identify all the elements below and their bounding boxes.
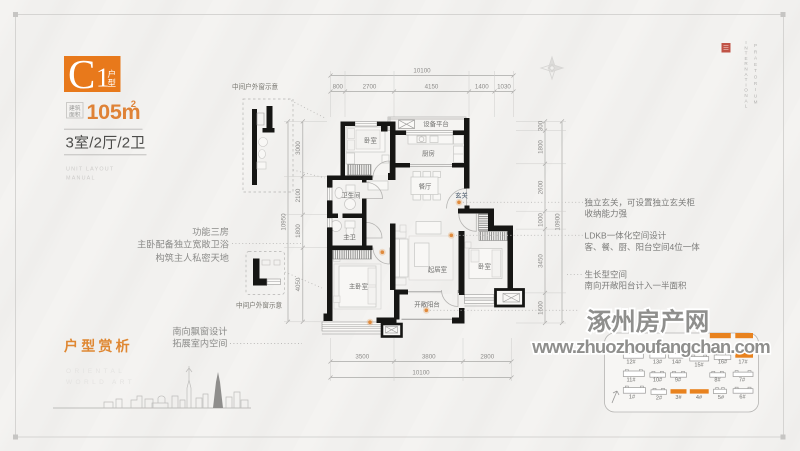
svg-text:16#: 16# (718, 360, 728, 366)
svg-text:主卧配备独立宽敞卫浴: 主卧配备独立宽敞卫浴 (137, 239, 229, 250)
svg-text:收纳能力强: 收纳能力强 (585, 208, 628, 218)
svg-text:4#: 4# (696, 395, 703, 401)
svg-text:E: E (744, 56, 747, 61)
svg-text:3#: 3# (675, 395, 682, 401)
svg-text:南向开敞阳台计入一半面积: 南向开敞阳台计入一半面积 (585, 280, 688, 290)
svg-text:设备平台: 设备平台 (423, 119, 449, 128)
svg-text:1000: 1000 (538, 213, 545, 227)
svg-text:C: C (68, 51, 95, 97)
svg-text:17#: 17# (738, 360, 748, 366)
svg-text:户型赏析: 户型赏析 (64, 338, 133, 354)
svg-text:A: A (744, 72, 748, 77)
svg-text:2100: 2100 (295, 188, 302, 202)
svg-text:13#: 13# (653, 360, 663, 366)
svg-text:T: T (745, 77, 748, 82)
svg-text:3室/2厅/2卫: 3室/2厅/2卫 (66, 135, 146, 152)
svg-text:建筑: 建筑 (69, 104, 81, 112)
svg-text:餐厅: 餐厅 (419, 182, 432, 191)
svg-text:卫生间: 卫生间 (341, 191, 360, 200)
svg-text:生长型空间: 生长型空间 (585, 270, 628, 280)
svg-text:UNIT LAYOUT: UNIT LAYOUT (66, 167, 114, 173)
svg-text:P: P (754, 43, 757, 48)
svg-text:T: T (754, 68, 757, 73)
svg-text:面积: 面积 (69, 111, 81, 119)
svg-text:N: N (744, 45, 747, 50)
svg-text:I: I (745, 82, 746, 87)
svg-text:1400: 1400 (475, 84, 489, 91)
svg-text:独立玄关，可设置独立玄关柜: 独立玄关，可设置独立玄关柜 (585, 197, 696, 207)
svg-text:4150: 4150 (425, 84, 439, 91)
svg-text:主卫: 主卫 (343, 233, 356, 242)
svg-text:www.zhuozhoufangchan.com: www.zhuozhoufangchan.com (531, 336, 770, 357)
svg-text:6#: 6# (739, 395, 746, 401)
svg-text:型: 型 (108, 78, 117, 88)
svg-text:拓展室内空间: 拓展室内空间 (172, 338, 227, 349)
svg-text:起居室: 起居室 (428, 265, 448, 274)
svg-text:300: 300 (538, 120, 545, 131)
svg-text:功能三房: 功能三房 (192, 226, 229, 237)
svg-text:中间户外窗示意: 中间户外窗示意 (236, 301, 283, 310)
svg-text:A: A (754, 56, 758, 61)
svg-text:10950: 10950 (281, 213, 288, 231)
svg-text:9#: 9# (675, 378, 682, 384)
svg-text:L: L (745, 104, 748, 109)
svg-text:15#: 15# (694, 363, 704, 369)
svg-text:MANUAL: MANUAL (66, 175, 96, 181)
svg-text:I: I (755, 87, 756, 92)
svg-text:O: O (754, 75, 758, 80)
svg-text:3000: 3000 (295, 141, 302, 155)
svg-text:R: R (754, 81, 758, 86)
svg-text:11#: 11# (627, 378, 637, 384)
svg-text:N: N (744, 93, 747, 98)
svg-text:10#: 10# (653, 378, 663, 384)
svg-text:LDKB一体化空间设计: LDKB一体化空间设计 (585, 230, 667, 240)
svg-text:3500: 3500 (355, 354, 369, 361)
svg-text:10900: 10900 (555, 213, 562, 231)
svg-text:O: O (744, 88, 748, 93)
svg-text:1030: 1030 (497, 84, 511, 91)
svg-text:N: N (744, 67, 747, 72)
svg-text:T: T (745, 51, 748, 56)
svg-text:WORLD ART: WORLD ART (66, 379, 135, 386)
svg-text:玄关: 玄关 (455, 191, 468, 200)
svg-text:M: M (754, 100, 758, 105)
svg-text:卧室: 卧室 (364, 136, 377, 145)
svg-text:1600: 1600 (538, 301, 545, 315)
svg-text:14#: 14# (672, 360, 682, 366)
svg-text:南向飘窗设计: 南向飘窗设计 (172, 326, 227, 337)
svg-text:4050: 4050 (295, 277, 302, 291)
svg-text:卧室: 卧室 (478, 262, 491, 271)
svg-text:1800: 1800 (538, 140, 545, 154)
svg-text:厨房: 厨房 (422, 149, 435, 158)
svg-text:U: U (754, 93, 757, 98)
svg-text:3450: 3450 (538, 254, 545, 268)
svg-text:E: E (754, 62, 757, 67)
svg-text:2700: 2700 (363, 84, 377, 91)
svg-text:2600: 2600 (538, 180, 545, 194)
svg-text:R: R (754, 49, 758, 54)
svg-text:7#: 7# (739, 378, 746, 384)
svg-text:构筑主人私密天地: 构筑主人私密天地 (156, 252, 230, 263)
svg-text:800: 800 (333, 84, 344, 91)
svg-text:主卧室: 主卧室 (349, 282, 369, 291)
svg-text:A: A (744, 98, 748, 103)
svg-text:客、餐、厨、阳台空间4位一体: 客、餐、厨、阳台空间4位一体 (585, 242, 701, 252)
svg-text:I: I (745, 40, 746, 45)
svg-text:3800: 3800 (422, 354, 436, 361)
svg-text:12#: 12# (626, 360, 636, 366)
svg-text:5#: 5# (718, 395, 725, 401)
svg-text:2800: 2800 (480, 354, 494, 361)
svg-text:1800: 1800 (295, 224, 302, 238)
svg-text:R: R (744, 61, 748, 66)
svg-text:ORIENTAL: ORIENTAL (66, 368, 125, 375)
svg-text:2#: 2# (656, 396, 663, 402)
svg-text:8#: 8# (714, 378, 721, 384)
svg-text:10100: 10100 (413, 68, 431, 75)
svg-text:1#: 1# (629, 395, 636, 401)
svg-text:涿州房产网: 涿州房产网 (587, 307, 710, 336)
svg-text:中间户外窗示意: 中间户外窗示意 (232, 82, 279, 91)
svg-text:10100: 10100 (412, 370, 430, 377)
svg-text:2: 2 (131, 99, 136, 110)
